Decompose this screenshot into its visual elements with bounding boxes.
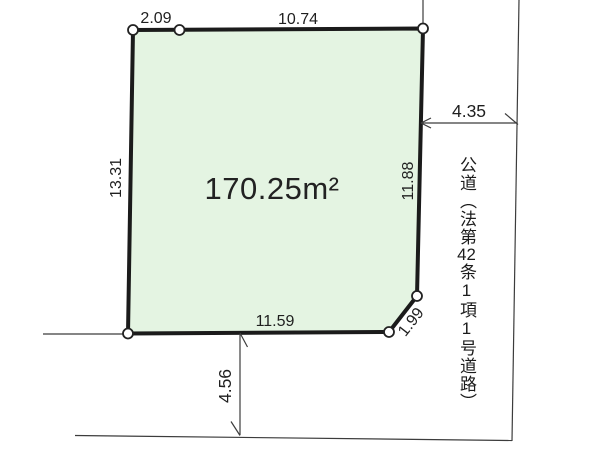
- vertex-marker-chamfer-bottom: [384, 327, 394, 337]
- vertex-marker-chamfer-top: [412, 291, 422, 301]
- site-plan-page: 2.09 10.74 13.31 11.88 4.35 11.59 1.99 4…: [0, 0, 600, 449]
- dim-label-road-width: 4.35: [452, 101, 486, 121]
- parcel-area-label: 170.25m²: [205, 171, 340, 206]
- road-label-part-3: 条1項1号道路）: [457, 263, 476, 411]
- vertex-marker-bottom-left: [123, 329, 133, 339]
- dim-tick-offset-bottom: [231, 422, 240, 436]
- dim-label-bottom: 11.59: [256, 313, 295, 330]
- dim-label-top-offset: 2.09: [140, 10, 171, 27]
- vertex-marker-top-right: [418, 24, 428, 34]
- road-boundary-line: [512, 0, 519, 441]
- road-designation-label: 公道（法第42条1項1号道路）: [447, 156, 485, 416]
- dim-label-road-offset: 4.56: [215, 369, 235, 403]
- vertex-marker-top-left: [128, 25, 138, 35]
- dim-tick-offset-top: [240, 333, 248, 347]
- vertex-marker-top-mid: [175, 25, 185, 35]
- road-label-part-1: 公道（法第: [457, 156, 476, 246]
- dim-label-left: 13.31: [108, 158, 125, 198]
- road-label-part-2: 42: [457, 246, 476, 263]
- dim-label-right: 11.88: [400, 161, 417, 200]
- dim-label-top: 10.74: [278, 11, 318, 28]
- road-edge-line-bottom: [75, 436, 512, 441]
- site-plan-svg: 2.09 10.74 13.31 11.88 4.35 11.59 1.99 4…: [0, 0, 600, 449]
